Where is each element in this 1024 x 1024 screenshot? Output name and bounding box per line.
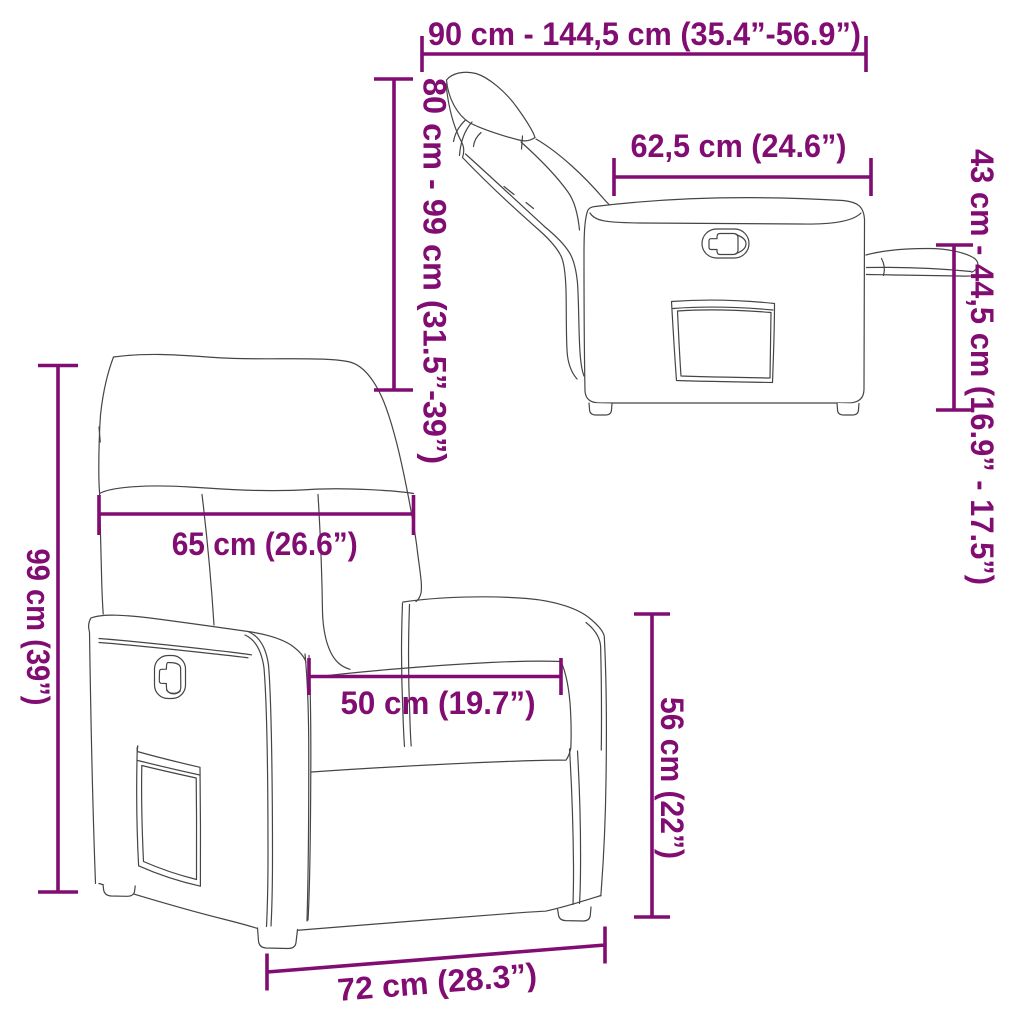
svg-text:56 cm (22”): 56 cm (22”): [654, 697, 690, 859]
svg-text:80 cm - 99 cm (31.5”-39”): 80 cm - 99 cm (31.5”-39”): [417, 78, 453, 464]
svg-text:50 cm (19.7”): 50 cm (19.7”): [341, 685, 536, 721]
svg-text:90 cm - 144,5 cm (35.4”-56.9”): 90 cm - 144,5 cm (35.4”-56.9”): [428, 16, 861, 52]
svg-text:99 cm (39”): 99 cm (39”): [20, 549, 56, 706]
svg-text:62,5 cm (24.6”): 62,5 cm (24.6”): [631, 128, 847, 164]
svg-text:65 cm (26.6”): 65 cm (26.6”): [172, 526, 358, 562]
svg-text:43 cm - 44,5 cm (16.9” - 17.5”: 43 cm - 44,5 cm (16.9” - 17.5”): [964, 149, 1000, 585]
